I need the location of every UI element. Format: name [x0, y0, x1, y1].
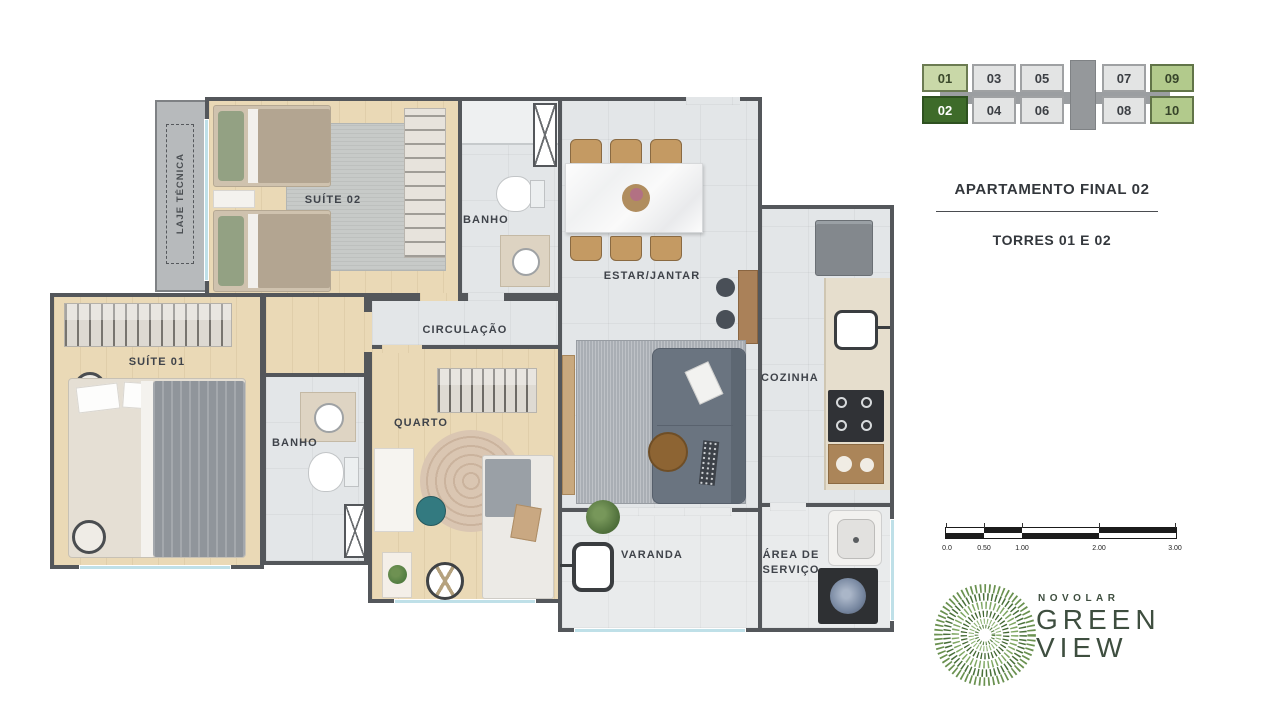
- window-servico: [891, 520, 894, 620]
- door-quarto: [382, 345, 422, 353]
- scale-tick: [1175, 523, 1176, 528]
- scale-tick: [1099, 523, 1100, 528]
- dining-chair: [610, 139, 642, 164]
- towers-subtitle: TORRES 01 E 02: [930, 232, 1174, 248]
- room-suite-01-entry: [262, 293, 368, 377]
- door-banho-top: [468, 293, 504, 301]
- stove: [828, 390, 884, 442]
- bar-stool: [716, 278, 735, 297]
- sink-basin: [512, 248, 540, 276]
- faucet: [560, 564, 574, 567]
- divider-line: [936, 211, 1158, 212]
- logo-brand-text: NOVOLAR: [1038, 594, 1120, 604]
- bar-counter: [738, 270, 758, 344]
- bed-single: [213, 105, 331, 187]
- logo-name-line2: VIEW: [1036, 634, 1128, 662]
- unit-cell-02-selected[interactable]: 02: [922, 96, 968, 124]
- desk-chair: [416, 496, 446, 526]
- unit-cell-04[interactable]: 04: [972, 96, 1016, 124]
- unit-cell-10[interactable]: 10: [1150, 96, 1194, 124]
- window-varanda: [575, 629, 745, 632]
- bar-stool: [716, 310, 735, 329]
- sheet: [248, 109, 258, 183]
- desk: [374, 448, 414, 532]
- room-circulacao: [368, 297, 562, 349]
- ventilation-shaft: [344, 504, 366, 558]
- coffee-table: [648, 432, 688, 472]
- armchair-round: [72, 520, 106, 554]
- pillow: [218, 111, 244, 181]
- plant-box: [382, 552, 412, 598]
- unit-cell-03[interactable]: 03: [972, 64, 1016, 92]
- room-label-area-servico: ÁREA DE SERVIÇO: [758, 548, 824, 579]
- apartment-title: APARTAMENTO FINAL 02: [930, 181, 1174, 198]
- room-label-cozinha: COZINHA: [761, 372, 819, 384]
- burner: [836, 397, 847, 408]
- unit-cell-08[interactable]: 08: [1102, 96, 1146, 124]
- laje-tecnica-label-box: LAJE TÉCNICA: [166, 124, 194, 264]
- centerpiece: [622, 184, 650, 212]
- room-label-suite02: SUÍTE 02: [233, 194, 433, 206]
- kitchen-sink: [834, 310, 878, 350]
- sofa-seam: [657, 425, 733, 426]
- ventilation-shaft: [533, 103, 557, 167]
- sink-basin: [314, 403, 344, 433]
- washing-machine: [818, 568, 878, 624]
- sofa: [652, 348, 746, 504]
- toilet-tank: [344, 457, 359, 487]
- scale-tick: [946, 523, 947, 528]
- drain: [853, 537, 859, 543]
- room-label-suite01: SUÍTE 01: [57, 356, 257, 368]
- room-label-laje-tecnica: LAJE TÉCNICA: [175, 153, 186, 234]
- dining-chair: [570, 236, 602, 261]
- scale-tick: [984, 523, 985, 528]
- room-laje-tecnica: LAJE TÉCNICA: [155, 100, 207, 292]
- sofa-backrest: [731, 349, 745, 503]
- laundry-tank: [828, 510, 882, 566]
- scale-label-050: 0.50: [977, 545, 991, 552]
- blanket: [153, 381, 245, 557]
- bookshelf: [437, 368, 537, 413]
- burner: [861, 420, 872, 431]
- room-label-banho-mid: BANHO: [272, 437, 318, 449]
- scale-label-300: 3.00: [1168, 545, 1182, 552]
- sheet: [248, 214, 258, 288]
- pillow: [510, 504, 542, 542]
- dining-table: [565, 163, 703, 233]
- unit-cell-05[interactable]: 05: [1020, 64, 1064, 92]
- plant: [388, 565, 407, 584]
- room-label-circulacao: CIRCULAÇÃO: [368, 324, 562, 336]
- logo-name-line1: GREEN: [1036, 606, 1161, 634]
- plant: [586, 500, 620, 534]
- tv-rack: [562, 355, 575, 495]
- blanket: [258, 109, 330, 183]
- floorplan-page: LAJE TÉCNICA: [0, 0, 1280, 720]
- elevator-core: [1070, 60, 1096, 130]
- kitchen-shelf: [828, 444, 884, 484]
- dining-chair: [610, 236, 642, 261]
- dining-chair: [570, 139, 602, 164]
- blanket: [258, 214, 330, 288]
- dining-chair: [650, 139, 682, 164]
- door-servico: [770, 503, 806, 511]
- scale-label-100: 1.00: [1015, 545, 1029, 552]
- sheet-fold: [141, 381, 153, 557]
- burner: [861, 397, 872, 408]
- room-label-banho-top: BANHO: [463, 214, 509, 226]
- bowl: [836, 456, 852, 472]
- unit-selector: 01 03 05 07 09 02 04 06 08 10: [915, 58, 1195, 130]
- pillow: [76, 383, 121, 414]
- unit-cell-09[interactable]: 09: [1150, 64, 1194, 92]
- door-suite02: [420, 293, 458, 301]
- scale-bar: [945, 527, 1177, 539]
- toilet: [496, 176, 532, 212]
- throw-pillow: [685, 361, 724, 405]
- bed-single: [482, 455, 554, 599]
- bed-single: [213, 210, 331, 292]
- window-quarto: [395, 600, 535, 603]
- unit-cell-07[interactable]: 07: [1102, 64, 1146, 92]
- burner: [836, 420, 847, 431]
- toilet-tank: [530, 180, 545, 208]
- wardrobe-rail: [64, 303, 232, 347]
- window-suite02: [205, 120, 208, 280]
- centerpiece-flower: [630, 188, 643, 201]
- ceiling-fan: [426, 562, 464, 600]
- brand-logo: NOVOLAR GREEN VIEW: [930, 580, 1170, 690]
- room-label-varanda: VARANDA: [562, 549, 742, 561]
- scale-tick: [1022, 523, 1023, 528]
- sink-counter: [300, 392, 356, 442]
- scale-row-bottom: [946, 533, 1176, 538]
- toilet: [308, 452, 344, 492]
- unit-cell-06[interactable]: 06: [1020, 96, 1064, 124]
- washer-drum: [830, 578, 866, 614]
- fridge: [815, 220, 873, 276]
- bowl: [860, 458, 874, 472]
- door-entrada: [686, 97, 740, 105]
- logo-mandala-icon: [932, 582, 1038, 688]
- pillow: [218, 216, 244, 286]
- room-label-quarto: QUARTO: [394, 417, 448, 429]
- scale-label-0: 0.0: [942, 545, 952, 552]
- scale-label-200: 2.00: [1092, 545, 1106, 552]
- window-suite01: [80, 566, 230, 569]
- room-label-estar-jantar: ESTAR/JANTAR: [562, 270, 742, 282]
- throw-pillow: [699, 440, 720, 485]
- faucet: [876, 326, 890, 329]
- dining-chair: [650, 236, 682, 261]
- sink-counter: [500, 235, 550, 287]
- wardrobe: [404, 108, 446, 258]
- unit-cell-01[interactable]: 01: [922, 64, 968, 92]
